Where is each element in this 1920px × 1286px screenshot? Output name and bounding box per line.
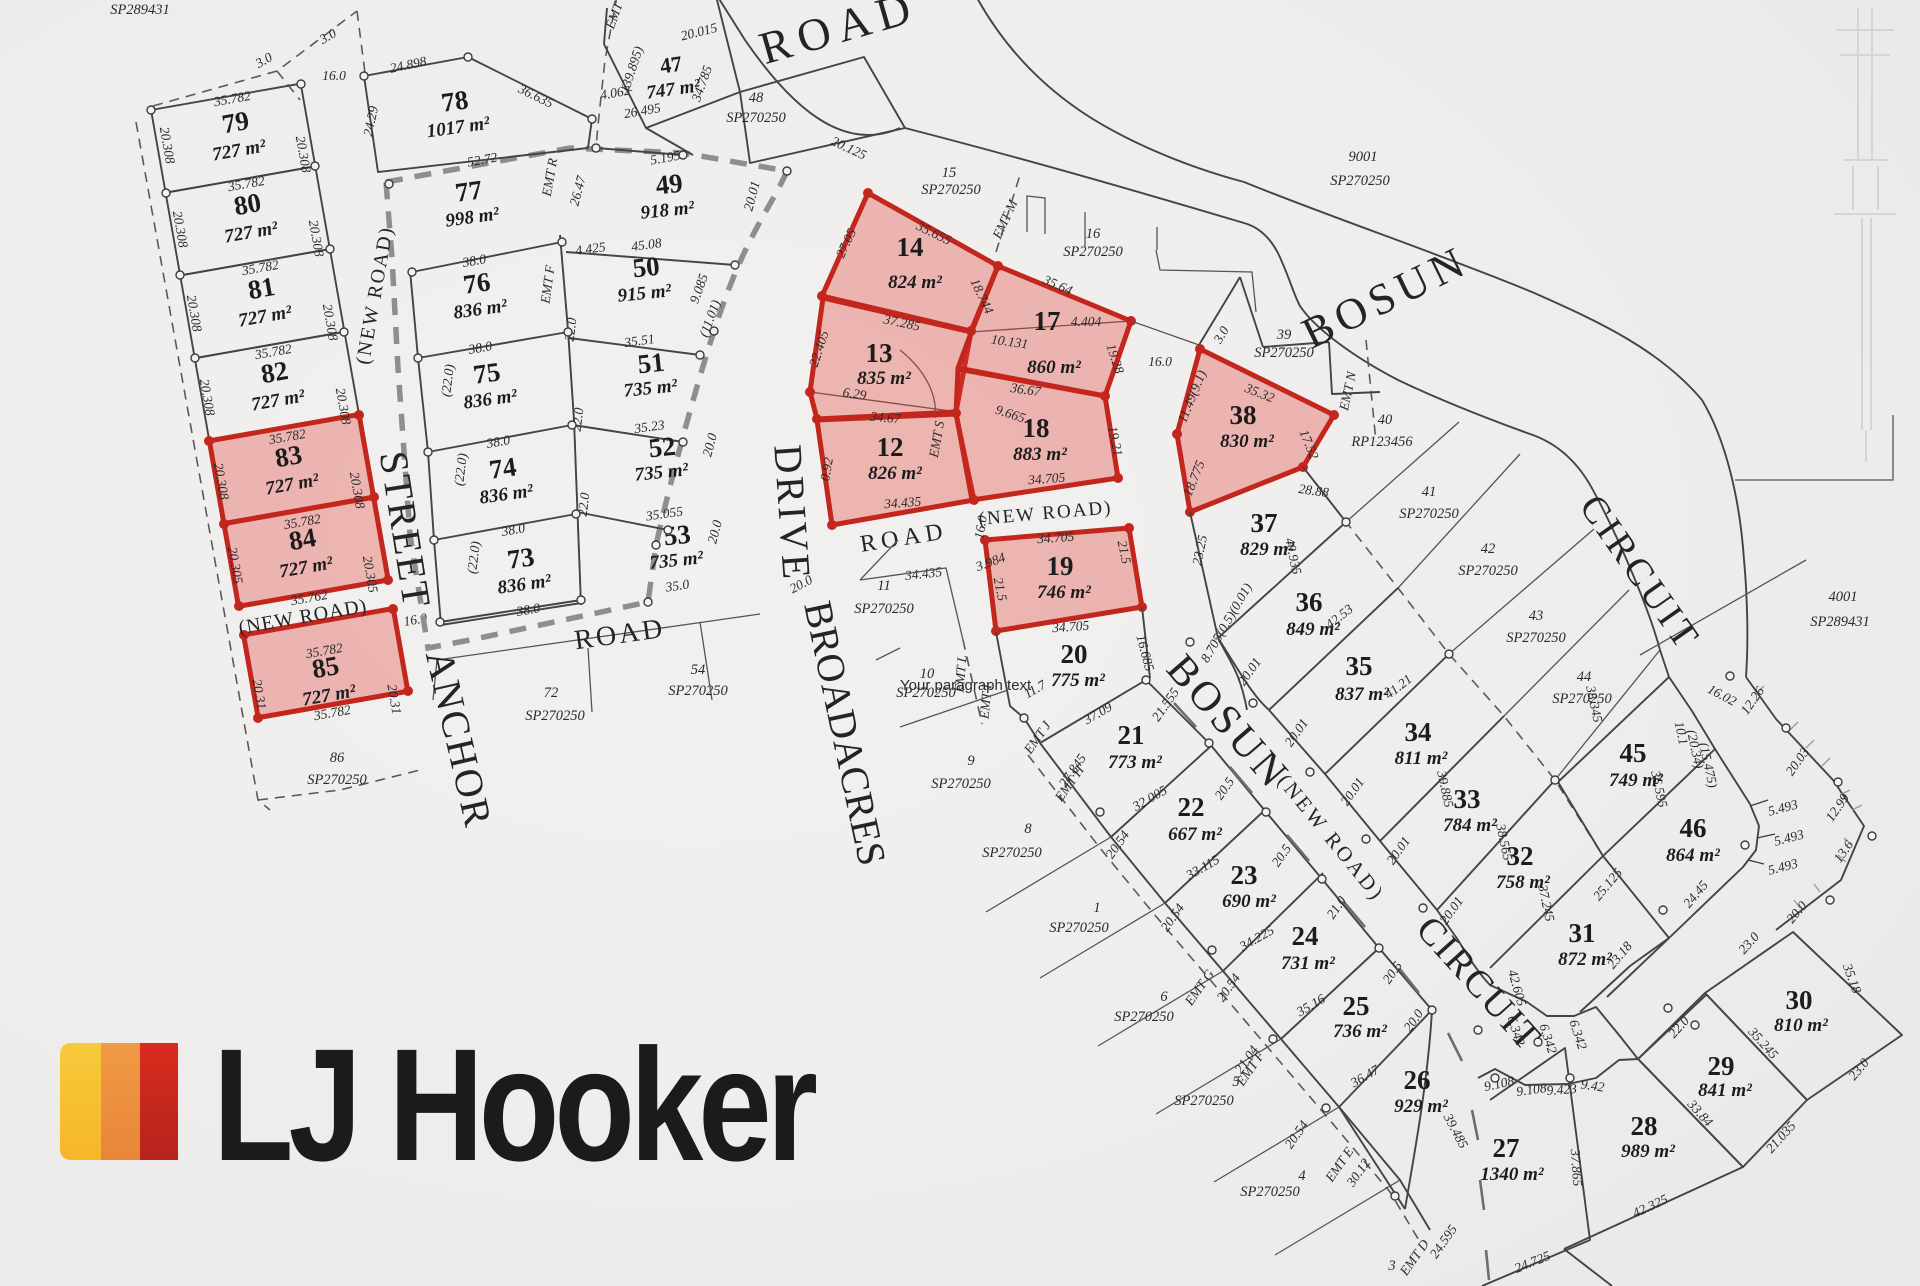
svg-text:43: 43 <box>1529 608 1544 624</box>
svg-text:34.705: 34.705 <box>1036 529 1075 547</box>
svg-text:841 m²: 841 m² <box>1698 1080 1753 1101</box>
svg-text:773 m²: 773 m² <box>1108 752 1163 773</box>
svg-text:746 m²: 746 m² <box>1037 582 1092 603</box>
svg-text:Your paragraph text: Your paragraph text <box>900 677 1032 694</box>
svg-text:784 m²: 784 m² <box>1443 815 1498 836</box>
svg-text:75: 75 <box>471 356 502 389</box>
svg-text:830 m²: 830 m² <box>1220 431 1275 452</box>
svg-text:929 m²: 929 m² <box>1394 1096 1449 1117</box>
svg-text:34.705: 34.705 <box>1051 618 1090 636</box>
svg-text:78: 78 <box>439 84 470 117</box>
svg-text:29: 29 <box>1708 1051 1735 1081</box>
svg-text:3: 3 <box>1387 1258 1395 1274</box>
svg-text:SP270250: SP270250 <box>1063 244 1123 260</box>
svg-text:9: 9 <box>967 753 975 769</box>
svg-text:16.0: 16.0 <box>1148 354 1172 369</box>
svg-text:SP270250: SP270250 <box>931 776 991 792</box>
svg-text:667 m²: 667 m² <box>1168 824 1223 845</box>
svg-text:SP270250: SP270250 <box>726 110 786 126</box>
svg-text:14: 14 <box>897 232 924 262</box>
svg-text:SP270250: SP270250 <box>307 772 367 788</box>
svg-text:34.67: 34.67 <box>869 409 903 427</box>
svg-text:31: 31 <box>1569 918 1596 948</box>
svg-text:9001: 9001 <box>1349 149 1378 165</box>
svg-text:25: 25 <box>1343 991 1370 1021</box>
svg-text:736 m²: 736 m² <box>1333 1021 1388 1042</box>
svg-text:79: 79 <box>220 105 252 139</box>
svg-text:36: 36 <box>1296 587 1323 617</box>
svg-text:16: 16 <box>1086 226 1101 242</box>
svg-text:1: 1 <box>1093 900 1100 916</box>
svg-text:SP270250: SP270250 <box>1114 1009 1174 1025</box>
svg-text:SP270250: SP270250 <box>1399 506 1459 522</box>
svg-text:23: 23 <box>1231 860 1258 890</box>
svg-text:30: 30 <box>1786 985 1813 1015</box>
svg-text:86: 86 <box>330 750 345 766</box>
svg-text:835 m²: 835 m² <box>857 368 912 389</box>
svg-text:690 m²: 690 m² <box>1222 891 1277 912</box>
svg-text:SP289431: SP289431 <box>110 2 170 18</box>
svg-text:42: 42 <box>1481 541 1496 557</box>
svg-text:SP270250: SP270250 <box>1506 630 1566 646</box>
svg-text:SP270250: SP270250 <box>1174 1093 1234 1109</box>
svg-text:39: 39 <box>1276 327 1292 343</box>
svg-text:73: 73 <box>505 541 536 574</box>
svg-text:SP270250: SP270250 <box>525 708 585 724</box>
svg-text:17: 17 <box>1034 306 1061 336</box>
svg-text:16.0: 16.0 <box>322 68 346 83</box>
svg-text:SP270250: SP270250 <box>1330 173 1390 189</box>
svg-text:44: 44 <box>1577 669 1592 685</box>
svg-text:52: 52 <box>647 431 677 464</box>
svg-text:883 m²: 883 m² <box>1013 444 1068 465</box>
svg-text:48: 48 <box>749 90 764 106</box>
svg-text:SP270250: SP270250 <box>1458 563 1518 579</box>
svg-text:SP270250: SP270250 <box>921 182 981 198</box>
svg-text:824 m²: 824 m² <box>888 272 943 293</box>
svg-text:21: 21 <box>1118 720 1145 750</box>
svg-text:18: 18 <box>1023 413 1050 443</box>
svg-text:4.404: 4.404 <box>1071 314 1102 329</box>
svg-text:864 m²: 864 m² <box>1666 845 1721 866</box>
svg-text:12: 12 <box>877 432 904 462</box>
svg-text:45: 45 <box>1620 738 1647 768</box>
svg-text:826 m²: 826 m² <box>868 463 923 484</box>
svg-text:13: 13 <box>866 338 893 368</box>
svg-text:77: 77 <box>453 174 484 207</box>
svg-text:34: 34 <box>1405 717 1432 747</box>
svg-text:34.705: 34.705 <box>1027 470 1066 488</box>
svg-text:50: 50 <box>631 251 661 284</box>
svg-text:6: 6 <box>1160 989 1168 1005</box>
svg-text:54: 54 <box>691 662 706 678</box>
svg-text:74: 74 <box>487 451 518 484</box>
svg-text:837 m²: 837 m² <box>1335 684 1390 705</box>
svg-text:26: 26 <box>1404 1065 1431 1095</box>
svg-text:46: 46 <box>1680 813 1707 843</box>
svg-text:15: 15 <box>942 165 957 181</box>
svg-text:SP270250: SP270250 <box>1240 1184 1300 1200</box>
svg-text:SP270250: SP270250 <box>1049 920 1109 936</box>
svg-text:24: 24 <box>1292 921 1319 951</box>
svg-text:SP270250: SP270250 <box>1552 691 1612 707</box>
svg-text:37.865: 37.865 <box>1568 1148 1586 1187</box>
svg-text:811 m²: 811 m² <box>1395 748 1449 769</box>
svg-text:SP270250: SP270250 <box>982 845 1042 861</box>
svg-text:72: 72 <box>544 685 559 701</box>
svg-text:SP270250: SP270250 <box>854 601 914 617</box>
svg-text:989 m²: 989 m² <box>1621 1141 1676 1162</box>
svg-text:41: 41 <box>1422 484 1437 500</box>
svg-text:22: 22 <box>1178 792 1205 822</box>
svg-text:810 m²: 810 m² <box>1774 1015 1829 1036</box>
svg-text:SP270250: SP270250 <box>668 683 728 699</box>
svg-text:53: 53 <box>662 519 692 552</box>
svg-text:SP289431: SP289431 <box>1810 614 1870 630</box>
svg-text:LJ Hooker: LJ Hooker <box>213 1015 816 1194</box>
svg-text:1340 m²: 1340 m² <box>1480 1164 1545 1185</box>
svg-text:20: 20 <box>1061 639 1088 669</box>
svg-text:35: 35 <box>1346 651 1373 681</box>
svg-text:28: 28 <box>1631 1111 1658 1141</box>
svg-text:27: 27 <box>1493 1133 1520 1163</box>
svg-text:DRIVE: DRIVE <box>765 443 819 583</box>
svg-text:11: 11 <box>877 578 890 594</box>
svg-text:19: 19 <box>1047 551 1074 581</box>
svg-text:34.435: 34.435 <box>883 494 922 512</box>
svg-text:860 m²: 860 m² <box>1027 357 1082 378</box>
svg-text:51: 51 <box>636 347 666 380</box>
svg-text:37: 37 <box>1251 508 1278 538</box>
svg-text:775 m²: 775 m² <box>1051 670 1106 691</box>
svg-text:9.423: 9.423 <box>1546 1081 1578 1098</box>
svg-text:49: 49 <box>654 168 684 201</box>
svg-text:76: 76 <box>461 266 492 299</box>
svg-text:731 m²: 731 m² <box>1281 953 1336 974</box>
svg-text:33: 33 <box>1454 784 1481 814</box>
svg-text:4: 4 <box>1298 1168 1305 1184</box>
svg-text:4001: 4001 <box>1829 589 1858 605</box>
svg-text:40: 40 <box>1378 412 1393 428</box>
svg-text:47: 47 <box>658 51 683 79</box>
svg-text:749 m²: 749 m² <box>1609 770 1664 791</box>
svg-text:RP123456: RP123456 <box>1350 434 1413 450</box>
svg-text:8: 8 <box>1024 821 1032 837</box>
svg-text:38: 38 <box>1230 400 1257 430</box>
